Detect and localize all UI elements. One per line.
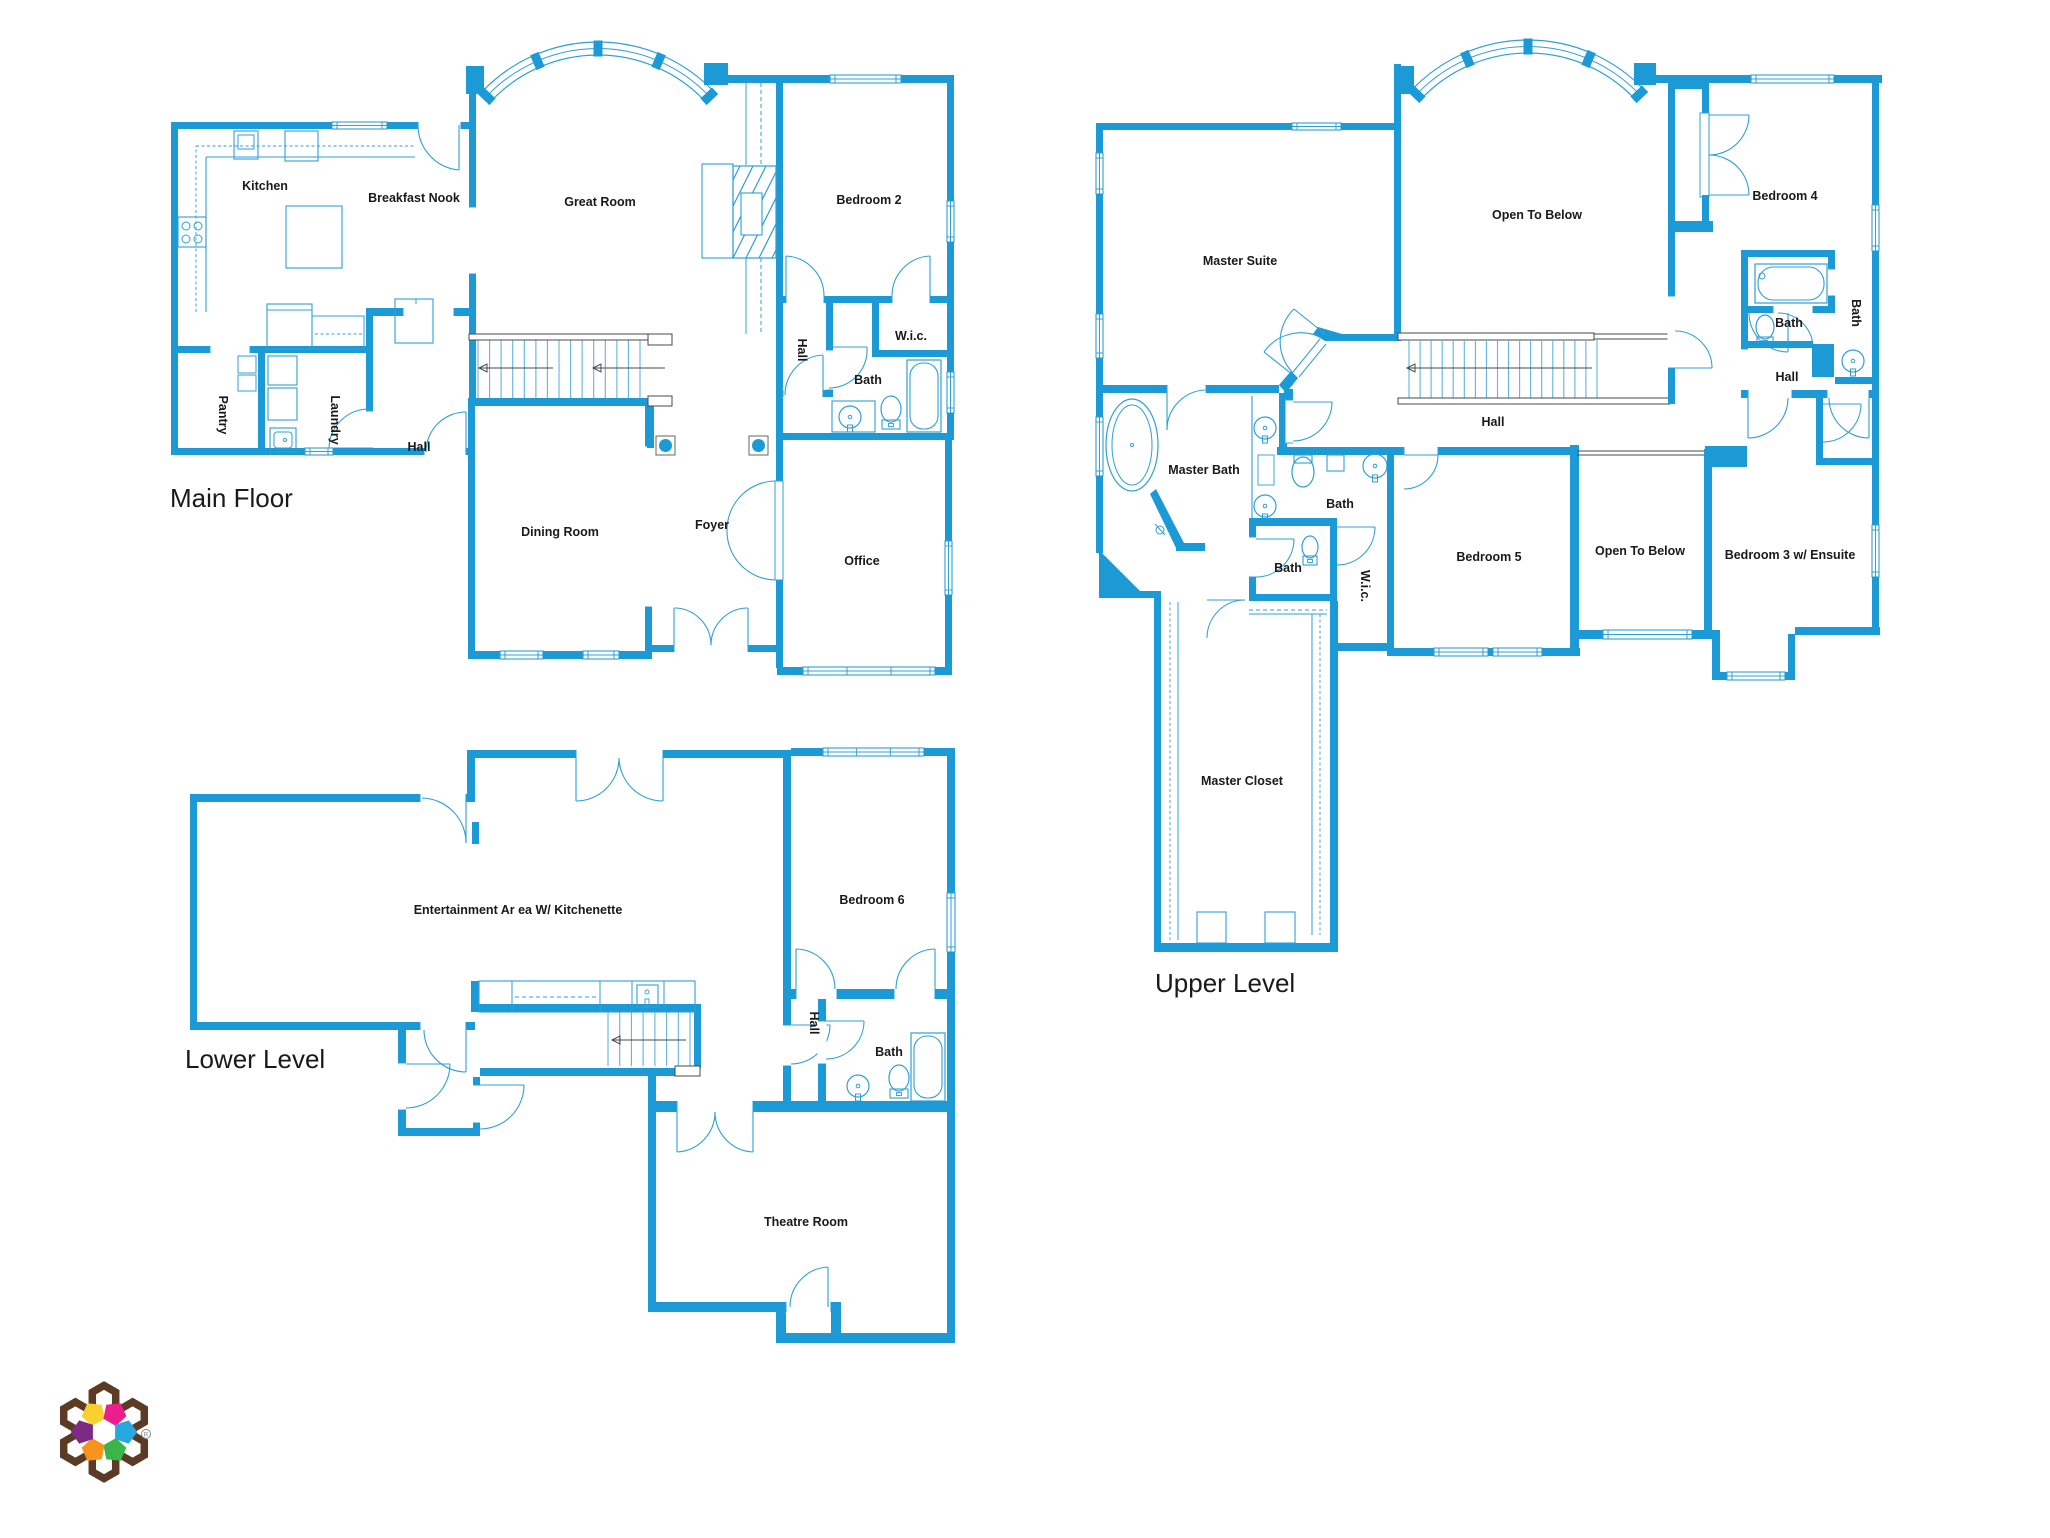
svg-text:Hall: Hall xyxy=(408,440,431,454)
svg-text:Theatre Room: Theatre Room xyxy=(764,1215,848,1229)
svg-text:Great Room: Great Room xyxy=(564,195,636,209)
svg-text:Main Floor: Main Floor xyxy=(170,483,293,513)
svg-text:Foyer: Foyer xyxy=(695,518,729,532)
svg-text:Master Bath: Master Bath xyxy=(1168,463,1240,477)
svg-text:Bath: Bath xyxy=(1274,561,1302,575)
svg-text:Bedroom 3 w/ Ensuite: Bedroom 3 w/ Ensuite xyxy=(1725,548,1856,562)
svg-text:W.i.c.: W.i.c. xyxy=(895,329,927,343)
svg-text:Hall: Hall xyxy=(795,339,809,362)
svg-text:Bath: Bath xyxy=(875,1045,903,1059)
svg-text:Bedroom 5: Bedroom 5 xyxy=(1456,550,1521,564)
svg-text:Hall: Hall xyxy=(1776,370,1799,384)
svg-text:Bedroom 6: Bedroom 6 xyxy=(839,893,904,907)
svg-text:Bath: Bath xyxy=(854,373,882,387)
svg-text:W.i.c.: W.i.c. xyxy=(1358,570,1372,602)
svg-text:Bath: Bath xyxy=(1775,316,1803,330)
svg-text:Master Suite: Master Suite xyxy=(1203,254,1277,268)
svg-text:Bath: Bath xyxy=(1326,497,1354,511)
svg-text:Entertainment Ar ea W/ Kitchen: Entertainment Ar ea W/ Kitchenette xyxy=(414,903,623,917)
svg-text:Pantry: Pantry xyxy=(216,396,230,435)
svg-text:Office: Office xyxy=(844,554,879,568)
svg-text:Dining Room: Dining Room xyxy=(521,525,599,539)
svg-text:Bedroom 4: Bedroom 4 xyxy=(1752,189,1817,203)
svg-text:Open To Below: Open To Below xyxy=(1492,208,1582,222)
svg-text:Lower Level: Lower Level xyxy=(185,1044,325,1074)
svg-text:Upper Level: Upper Level xyxy=(1155,968,1295,998)
svg-text:Laundry: Laundry xyxy=(328,395,342,444)
svg-text:Open To Below: Open To Below xyxy=(1595,544,1685,558)
svg-text:R: R xyxy=(144,1432,149,1439)
svg-text:Hall: Hall xyxy=(807,1012,821,1035)
svg-text:Bedroom 2: Bedroom 2 xyxy=(836,193,901,207)
svg-text:Bath: Bath xyxy=(1849,299,1863,327)
svg-text:Hall: Hall xyxy=(1482,415,1505,429)
svg-text:Kitchen: Kitchen xyxy=(242,179,288,193)
svg-text:Breakfast Nook: Breakfast Nook xyxy=(368,191,460,205)
svg-text:Master Closet: Master Closet xyxy=(1201,774,1284,788)
